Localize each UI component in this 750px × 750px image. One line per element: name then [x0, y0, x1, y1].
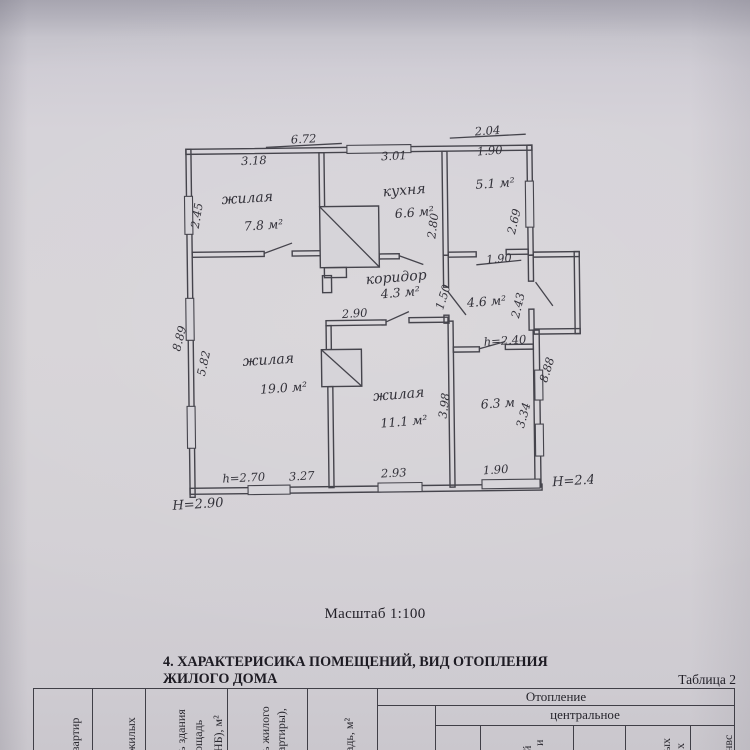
photographed-document-page: 6.72 2.04 3.18 3.01 1.90 2.45 жилая 7.8 … — [0, 0, 750, 750]
room-51-area: 5.1 м² — [475, 174, 515, 192]
heating-header: Отопление — [377, 689, 735, 705]
room-living3-area: 11.1 м² — [380, 412, 428, 431]
dim-327: 3.27 — [289, 468, 316, 483]
room-46-area: 4.6 м² — [465, 292, 506, 310]
room-living2-area: 19.0 м² — [260, 379, 308, 397]
table-border — [92, 688, 93, 750]
dim-150: 1.50 — [432, 283, 453, 312]
col-header-living-fragment: жилых — [125, 717, 138, 750]
room-living3-label: жилая — [372, 385, 425, 405]
scale-note: Масштаб 1:100 — [0, 606, 750, 623]
dim-245: 2.45 — [188, 202, 206, 231]
floor-plan-drawing: 6.72 2.04 3.18 3.01 1.90 2.45 жилая 7.8 … — [168, 122, 593, 522]
room-63-area: 6.3 м — [480, 394, 515, 411]
table-border — [625, 725, 626, 750]
dim-672: 6.72 — [291, 131, 317, 146]
dim-398: 3.98 — [436, 392, 453, 419]
section-heading: 4. ХАРАКТЕРИСИКА ПОМЕЩЕНИЙ, ВИД ОТОПЛЕНИ… — [163, 654, 603, 688]
dim-h270: h=2.70 — [222, 470, 265, 486]
subcol-header-fragment-1a: й — [521, 746, 534, 750]
table-border — [307, 688, 308, 750]
dim-290: 2.90 — [340, 306, 367, 322]
dim-H290: H=2.90 — [171, 496, 224, 514]
dim-h240: h=2.40 — [483, 332, 526, 349]
table-border — [145, 688, 146, 750]
dim-243: 2.43 — [508, 291, 528, 320]
dim-889: 8.89 — [169, 324, 189, 352]
room-living1-label: жилая — [221, 189, 273, 208]
table-caption: Таблица 2 — [678, 672, 736, 688]
subcol-header-fragment-2a: ых — [660, 738, 673, 750]
dim-190-top: 1.90 — [477, 143, 503, 159]
col-header-dwelling-area-fragment-2: артиры), — [275, 708, 288, 750]
subcol-header-fragment-3: нвс — [722, 735, 735, 750]
col-header-building-area-fragment-3: НБ), м² — [212, 715, 225, 750]
table-border — [480, 725, 481, 750]
dim-293: 2.93 — [380, 465, 407, 480]
col-header-area-fragment: адь, м² — [343, 718, 356, 750]
col-header-apartments-fragment: вартир — [69, 718, 82, 750]
dim-190-bot: 1.90 — [482, 462, 508, 478]
heating-central-header: центральное — [435, 707, 735, 723]
table-border — [690, 725, 691, 750]
dim-204: 2.04 — [473, 123, 500, 139]
dim-318: 3.18 — [241, 153, 267, 168]
heating-table: Отопление центральное вартир жилых ь зда… — [33, 688, 735, 750]
room-living1-area: 7.8 м² — [244, 216, 284, 234]
dim-280: 2.80 — [424, 212, 441, 240]
table-border — [33, 688, 34, 750]
col-header-building-area-fragment-1: ь здания — [175, 709, 188, 750]
col-header-building-area-fragment-2: ощадь — [192, 720, 205, 750]
table-border — [227, 688, 228, 750]
dim-334: 3.34 — [513, 401, 533, 429]
table-border — [573, 725, 574, 750]
dim-190-mid: 1.90 — [486, 251, 513, 267]
subcol-header-fragment-1b: и — [533, 740, 546, 746]
dim-H245: H=2.45 — [551, 472, 593, 490]
dim-269: 2.69 — [504, 207, 524, 236]
subcol-header-fragment-2b: х — [674, 743, 687, 749]
dim-301: 3.01 — [381, 148, 407, 163]
dim-582: 5.82 — [194, 349, 213, 377]
room-kitchen-label: кухня — [382, 181, 426, 200]
col-header-dwelling-area-fragment-1: ь жилого — [259, 706, 272, 750]
room-living2-label: жилая — [242, 351, 294, 370]
room-corridor-area: 4.3 м² — [379, 283, 420, 301]
